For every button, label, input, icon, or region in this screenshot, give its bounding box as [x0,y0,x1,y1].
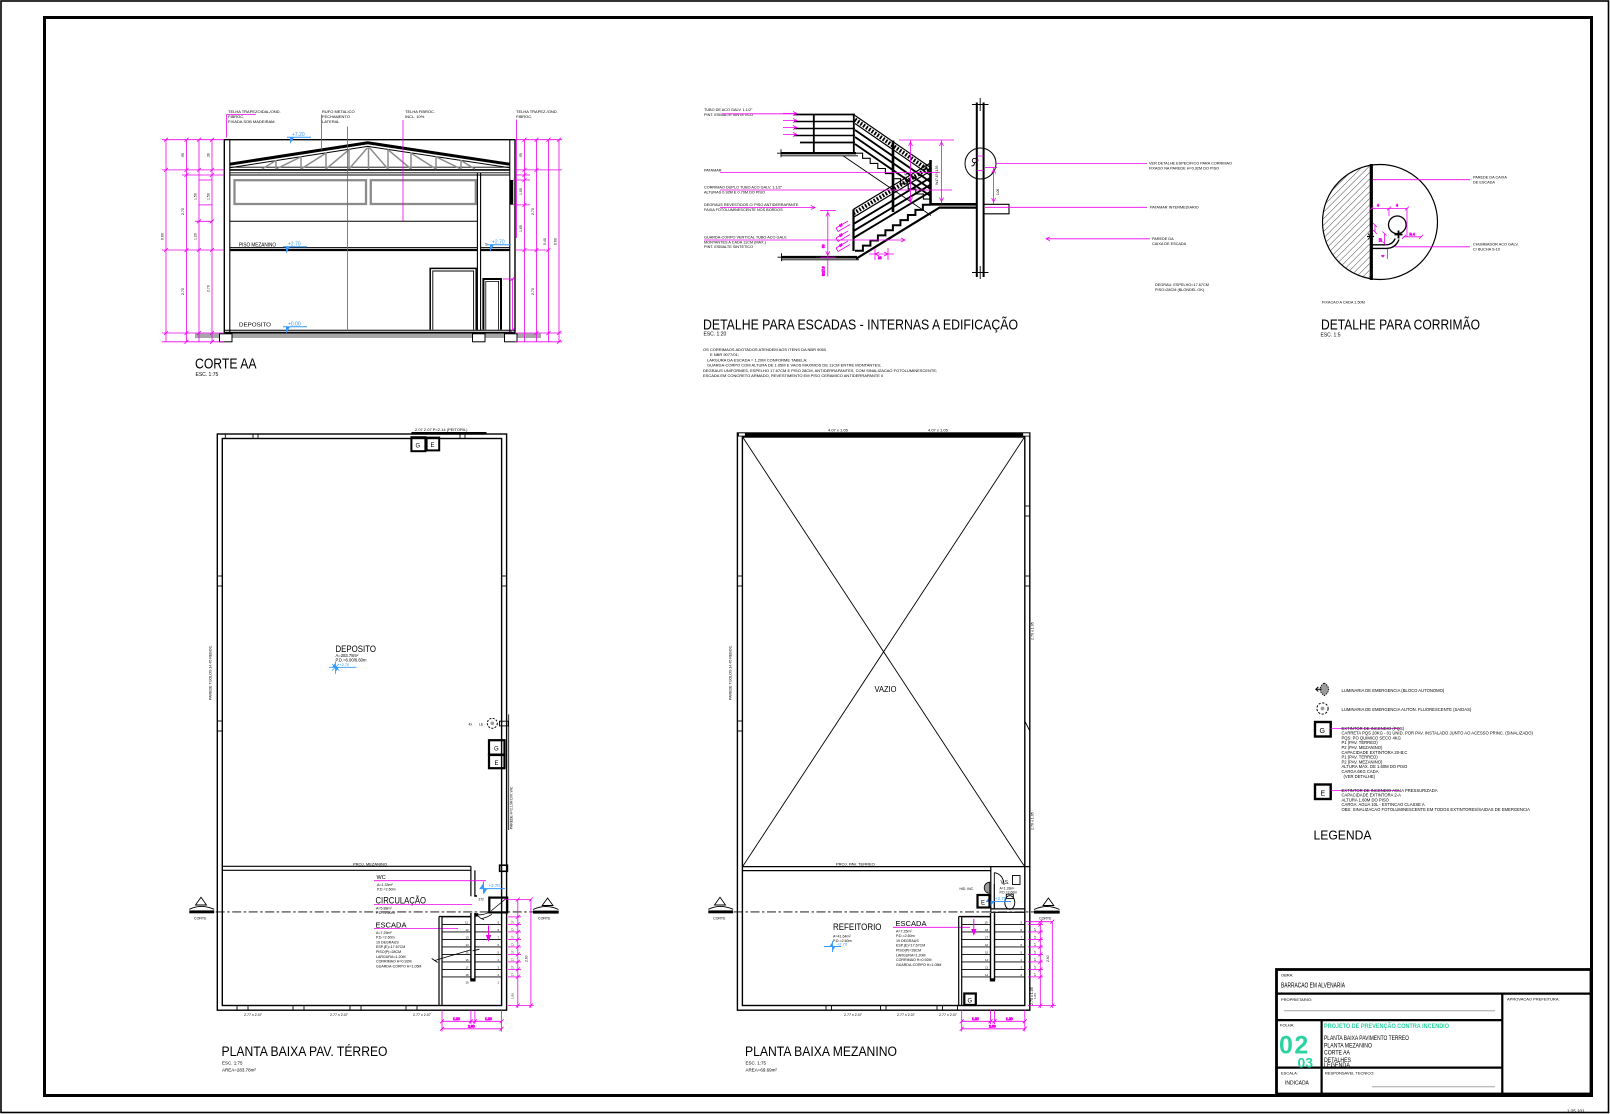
svg-text:17: 17 [511,958,515,962]
svg-text:LE: LE [479,723,484,727]
svg-text:P.D.=2.60m: P.D.=2.60m [896,934,915,938]
svg-text:LATERAL: LATERAL [322,119,340,124]
svg-text:4: 4 [1377,204,1379,208]
svg-text:REFEITORIO: REFEITORIO [833,922,882,932]
svg-text:6.60: 6.60 [554,238,558,245]
svg-text:PISO MEZANINO: PISO MEZANINO [239,243,276,249]
svg-text:ESC. 1:5: ESC. 1:5 [1321,333,1341,339]
svg-text:DEGRAU: ESPELHO=17.67CM: DEGRAU: ESPELHO=17.67CM [1155,283,1209,287]
svg-text:GUARDA-CORPO VERTICAL TUBO ACO: GUARDA-CORPO VERTICAL TUBO ACO GALV. [704,236,787,240]
svg-text:.95: .95 [519,153,523,158]
svg-text:2.77 x 2.07: 2.77 x 2.07 [939,1013,957,1017]
svg-text:LUMINARIA DE EMERGENCIA (BLOCO: LUMINARIA DE EMERGENCIA (BLOCO AUTONOMO) [1342,688,1445,693]
svg-text:5.40: 5.40 [543,238,547,245]
svg-text:VER DETALHE ESPECIFICO PARA CO: VER DETALHE ESPECIFICO PARA CORRIMAO [1149,162,1232,166]
svg-text:PAREDE TIJOLOS 14.45 REBOC.: PAREDE TIJOLOS 14.45 REBOC. [209,645,213,700]
svg-text:C/ BUCHA S-10: C/ BUCHA S-10 [1473,247,1500,251]
svg-text:12: 12 [985,973,989,977]
svg-text:TUBO DE ACO GALV. 1.1/2": TUBO DE ACO GALV. 1.1/2" [704,108,753,112]
svg-text:17: 17 [511,928,515,932]
svg-text:GUARDA-CORPO H=1.05M: GUARDA-CORPO H=1.05M [376,964,421,968]
svg-text:PATAMAR: PATAMAR [704,169,722,173]
svg-text:PAREDE H=2.10M DIV. WC: PAREDE H=2.10M DIV. WC [510,786,514,829]
svg-text:1.20: 1.20 [194,233,198,240]
svg-text:E: E [431,443,435,449]
svg-text:ESC. 1:75: ESC. 1:75 [746,1061,767,1066]
svg-text:INCL. 10%: INCL. 10% [405,114,425,119]
svg-text:MONTANTES A CADA 11CM (MAX.): MONTANTES A CADA 11CM (MAX.) [704,240,767,244]
svg-text:17: 17 [1033,928,1037,932]
svg-text:FIXACAO A CADA 1.50M: FIXACAO A CADA 1.50M [1322,301,1365,305]
svg-text:18: 18 [985,928,989,932]
svg-text:4x: 4x [469,723,473,727]
svg-text:+2.70: +2.70 [489,883,501,888]
svg-text:G: G [968,999,973,1005]
svg-text:APROVACAO PREFEITURA:: APROVACAO PREFEITURA: [1507,997,1560,1002]
svg-text:RESPONSAVEL TECNICO:: RESPONSAVEL TECNICO: [1325,1071,1375,1076]
svg-text:DEPOSITO: DEPOSITO [239,323,271,329]
svg-text:12: 12 [466,928,470,932]
svg-text:E: E [495,761,499,767]
svg-text:ALTURAS 0.92M E 0.70M DO PISO: ALTURAS 0.92M E 0.70M DO PISO [704,190,765,194]
svg-text:CORTE: CORTE [194,917,207,921]
svg-text:1.20: 1.20 [453,1017,460,1021]
svg-text:2.77 x 2.07: 2.77 x 2.07 [330,1013,348,1017]
svg-text:V.S.: V.S. [1001,880,1010,886]
svg-text:28: 28 [878,256,882,260]
svg-text:+2.70: +2.70 [837,941,848,946]
svg-text:2.77 x 2.07: 2.77 x 2.07 [897,1013,915,1017]
svg-text:CORTE: CORTE [538,917,551,921]
svg-text:ESCADA: ESCADA [376,920,407,929]
svg-text:AREA=69.69m²: AREA=69.69m² [746,1068,778,1073]
svg-text:9x17.67=1.59: 9x17.67=1.59 [935,165,939,185]
svg-text:4.07 x 1.05: 4.07 x 1.05 [828,427,849,432]
svg-text:1.65: 1.65 [519,225,523,232]
svg-text:17: 17 [511,950,515,954]
svg-text:16: 16 [466,958,470,962]
svg-text:6.60: 6.60 [161,233,165,240]
svg-text:.: . [1281,989,1282,994]
svg-text:2.60: 2.60 [525,955,529,962]
svg-text:R 4: R 4 [1410,233,1415,237]
svg-text:17: 17 [1033,958,1037,962]
svg-text:CORRIMAO DUPLO TUBO ACO GALV.: CORRIMAO DUPLO TUBO ACO GALV. 1.1/2" [704,186,783,190]
svg-text:ESCADA EM CONCRETO ARMADO, REV: ESCADA EM CONCRETO ARMADO, REVESTIMENTO … [703,373,884,378]
svg-text:.30: .30 [207,153,211,158]
svg-text:1:25 101.: 1:25 101. [1567,1109,1586,1114]
svg-text:17: 17 [1033,943,1037,947]
svg-text:4.07 x 1.05: 4.07 x 1.05 [928,427,949,432]
svg-text:1.05: 1.05 [519,188,523,195]
svg-text:.95: .95 [181,153,185,158]
svg-text:PISO(P)=28CM: PISO(P)=28CM [896,949,921,953]
svg-text:ESC. 1:75: ESC. 1:75 [196,372,219,378]
svg-text:19: 19 [466,980,470,984]
svg-text:19 DEGRAUS: 19 DEGRAUS [896,939,919,943]
svg-text:(VER DETALHE): (VER DETALHE) [1344,774,1376,779]
svg-text:1.06: 1.06 [996,189,1000,195]
svg-text:CIRCULAÇÃO: CIRCULAÇÃO [376,895,427,905]
svg-text:19: 19 [985,920,989,924]
svg-text:PROJ. PAV. TERREO: PROJ. PAV. TERREO [836,862,875,867]
svg-text:11: 11 [465,920,468,924]
svg-text:FAIXA FOTOLUMINESCENTE NOS BOR: FAIXA FOTOLUMINESCENTE NOS BORDOS [704,208,783,212]
svg-text:2.77 x 2.07: 2.77 x 2.07 [413,1013,431,1017]
svg-text:CORRIMAO H=0.92M: CORRIMAO H=0.92M [896,958,931,962]
svg-text:FIXADA SOB MADEIRAM.: FIXADA SOB MADEIRAM. [228,119,276,124]
svg-text:PLANTA MEZANINO: PLANTA MEZANINO [1324,1043,1372,1049]
svg-text:.: . [1281,1015,1282,1020]
svg-text:13: 13 [985,965,989,969]
svg-text:G: G [494,747,499,753]
svg-text:2.70: 2.70 [531,208,535,215]
svg-text:17: 17 [511,973,515,977]
svg-text:ESCALA:: ESCALA: [1281,1071,1298,1076]
svg-text:A=1.33m²: A=1.33m² [377,883,393,887]
svg-text:FOLHA:: FOLHA: [1280,1023,1294,1028]
svg-text:17: 17 [466,965,470,969]
svg-text:PROPRIETARIO:: PROPRIETARIO: [1281,997,1312,1002]
svg-text:LARGURA=1.20M: LARGURA=1.20M [376,955,405,959]
svg-text:17: 17 [1033,950,1037,954]
svg-text:OBRA:: OBRA: [1281,973,1293,978]
svg-text:G: G [1320,728,1325,735]
svg-text:ESP.(E)=17.67CM: ESP.(E)=17.67CM [896,944,925,948]
svg-text:GUARDA-CORPO H=1.05M: GUARDA-CORPO H=1.05M [896,963,941,967]
svg-text:PAREDE DA: PAREDE DA [1152,237,1174,241]
svg-text:2.70 x 1.05: 2.70 x 1.05 [1031,622,1035,640]
svg-text:17: 17 [985,935,989,939]
svg-text:PAREDE TIJOLOS 14.45 REBOC.: PAREDE TIJOLOS 14.45 REBOC. [729,645,733,700]
svg-text:A=7.25m²: A=7.25m² [376,931,392,935]
svg-text:03: 03 [1298,1055,1314,1071]
svg-text:1.20: 1.20 [972,1017,979,1021]
svg-text:18: 18 [466,973,470,977]
svg-text:2.77 x 2.07: 2.77 x 2.07 [844,1013,862,1017]
svg-text:+2.70: +2.70 [995,896,1007,901]
svg-text:PROJETO DE PREVENÇÃO CONTRA IN: PROJETO DE PREVENÇÃO CONTRA INCENDIO [1324,1023,1449,1030]
svg-text:PATAMAR INTERMEDIARIO: PATAMAR INTERMEDIARIO [1150,206,1199,210]
svg-text:2.70: 2.70 [181,208,185,215]
svg-text:S: S [485,242,488,247]
svg-text:WC: WC [377,875,386,881]
svg-text:ESP.(E)=17.67CM: ESP.(E)=17.67CM [376,945,405,949]
svg-text:LARGURA=1.20M: LARGURA=1.20M [896,953,925,957]
svg-text:CORRIMAO H=0.92M: CORRIMAO H=0.92M [376,960,411,964]
svg-text:PROJ. MEZANINO: PROJ. MEZANINO [353,862,387,867]
svg-text:ESCADA: ESCADA [896,919,927,928]
svg-text:DETALHE PARA CORRIMÃO: DETALHE PARA CORRIMÃO [1321,316,1480,333]
svg-text:2.07 2.07 P=2.14 (PEITORIL): 2.07 2.07 P=2.14 (PEITORIL) [415,427,468,432]
svg-text:A=7.25m²: A=7.25m² [896,929,912,933]
svg-text:19 DEGRAUS: 19 DEGRAUS [376,940,399,944]
svg-text:+2.70: +2.70 [340,663,350,667]
svg-text:PLANTA BAIXA PAVIMENTO TERREO: PLANTA BAIXA PAVIMENTO TERREO [1324,1036,1409,1042]
svg-text:2.77 x 2.07: 2.77 x 2.07 [244,1013,262,1017]
svg-text:CAIXA DE ESCADA: CAIXA DE ESCADA [1152,242,1187,246]
svg-text:17: 17 [511,920,515,924]
svg-text:1.50: 1.50 [207,193,211,200]
svg-text:13: 13 [466,935,470,939]
svg-text:90: 90 [822,244,826,248]
svg-text:E: E [1321,790,1326,797]
svg-text:272: 272 [479,898,485,902]
svg-text:INDICADA: INDICADA [1285,1081,1310,1087]
svg-text:2.70: 2.70 [181,288,185,295]
svg-text:PISO(P)=28CM: PISO(P)=28CM [376,950,401,954]
svg-text:CHUMBADOR ACO GALV.: CHUMBADOR ACO GALV. [1473,243,1519,247]
svg-text:17: 17 [511,935,515,939]
svg-text:16: 16 [985,943,989,947]
svg-text:CORTE: CORTE [713,917,726,921]
svg-text:BARRACAO EM ALVENARIA: BARRACAO EM ALVENARIA [1281,983,1345,990]
svg-text:CORTE AA: CORTE AA [195,357,257,373]
svg-text:8x17.6: 8x17.6 [822,266,826,276]
svg-text:PISO=28CM (BLONDEL OK): PISO=28CM (BLONDEL OK) [1155,288,1205,292]
svg-text:DEGRAUS REVESTIDOS C/ PISO ANT: DEGRAUS REVESTIDOS C/ PISO ANTIDERRAPANT… [704,203,799,207]
svg-text:2.70 x 1.05: 2.70 x 1.05 [1031,812,1035,830]
svg-text:HID. INC.: HID. INC. [960,887,975,891]
svg-text:G: G [416,444,421,450]
svg-text:FIBROC.: FIBROC. [516,114,532,119]
svg-text:LUMINARIA DE EMERGENCIA AUTON.: LUMINARIA DE EMERGENCIA AUTON. FLUORESCE… [1342,707,1472,712]
svg-text:17: 17 [1033,935,1037,939]
svg-text:E: E [981,901,985,907]
svg-text:2.60: 2.60 [468,1024,475,1028]
svg-text:AREA=283.78m²: AREA=283.78m² [222,1068,256,1073]
svg-text:DETALHE PARA ESCADAS - INTERNA: DETALHE PARA ESCADAS - INTERNAS A EDIFIC… [703,317,1018,334]
svg-text:2.60: 2.60 [1046,955,1050,962]
svg-text:2.70: 2.70 [207,285,211,292]
svg-text:OBS: SINALIZACAO FOTOLUMINESCE: OBS: SINALIZACAO FOTOLUMINESCENTE EM TOD… [1342,807,1531,812]
svg-text:1.20: 1.20 [1006,1017,1013,1021]
svg-text:FIXADO NA PAREDE H=0.92M DO PI: FIXADO NA PAREDE H=0.92M DO PISO [1149,166,1219,170]
svg-text:2.70: 2.70 [531,288,535,295]
svg-text:ESC. 1:20: ESC. 1:20 [704,332,727,338]
svg-text:DE ESCADA: DE ESCADA [1473,180,1495,184]
svg-text:CORTE AA: CORTE AA [1324,1051,1350,1057]
svg-text:PLANTA BAIXA PAV. TÉRREO: PLANTA BAIXA PAV. TÉRREO [222,1044,388,1059]
svg-text:PINT. ESMALTE SINTETICO: PINT. ESMALTE SINTETICO [704,245,753,249]
svg-text:4: 4 [1396,204,1398,208]
svg-text:17: 17 [511,965,515,969]
svg-text:14: 14 [985,958,989,962]
svg-text:17x17.67: 17x17.67 [904,172,908,185]
svg-text:ESC. 1:75: ESC. 1:75 [222,1061,243,1066]
svg-text:PAREDE DA CAIXA: PAREDE DA CAIXA [1473,176,1507,180]
svg-text:14: 14 [466,943,470,947]
svg-text:2.60: 2.60 [989,1024,996,1028]
svg-text:17: 17 [511,943,515,947]
svg-text:1.20: 1.20 [485,1017,492,1021]
svg-text:17: 17 [1033,965,1037,969]
svg-text:A=5.88m²: A=5.88m² [376,907,392,911]
svg-text:P.D.=2.60m: P.D.=2.60m [376,936,395,940]
svg-text:CORTE: CORTE [1039,917,1052,921]
svg-text:P.D.=2.60m: P.D.=2.60m [377,887,396,891]
svg-text:LEGENDA: LEGENDA [1314,828,1372,843]
svg-text:LEGENDA: LEGENDA [1324,1063,1350,1069]
svg-text:1.50: 1.50 [194,193,198,200]
svg-text:PLANTA BAIXA MEZANINO: PLANTA BAIXA MEZANINO [745,1044,897,1059]
svg-text:15: 15 [985,950,989,954]
svg-text:VAZIO: VAZIO [875,685,897,694]
svg-text:10: 10 [1379,238,1383,242]
svg-text:P.D.=6.00/6.60m: P.D.=6.00/6.60m [336,657,368,662]
svg-text:17: 17 [1033,973,1037,977]
svg-text:1.06: 1.06 [1033,993,1037,999]
svg-text:1.06: 1.06 [511,993,515,999]
svg-text:4: 4 [1381,255,1385,257]
svg-text:A=41.64m²: A=41.64m² [833,935,851,939]
